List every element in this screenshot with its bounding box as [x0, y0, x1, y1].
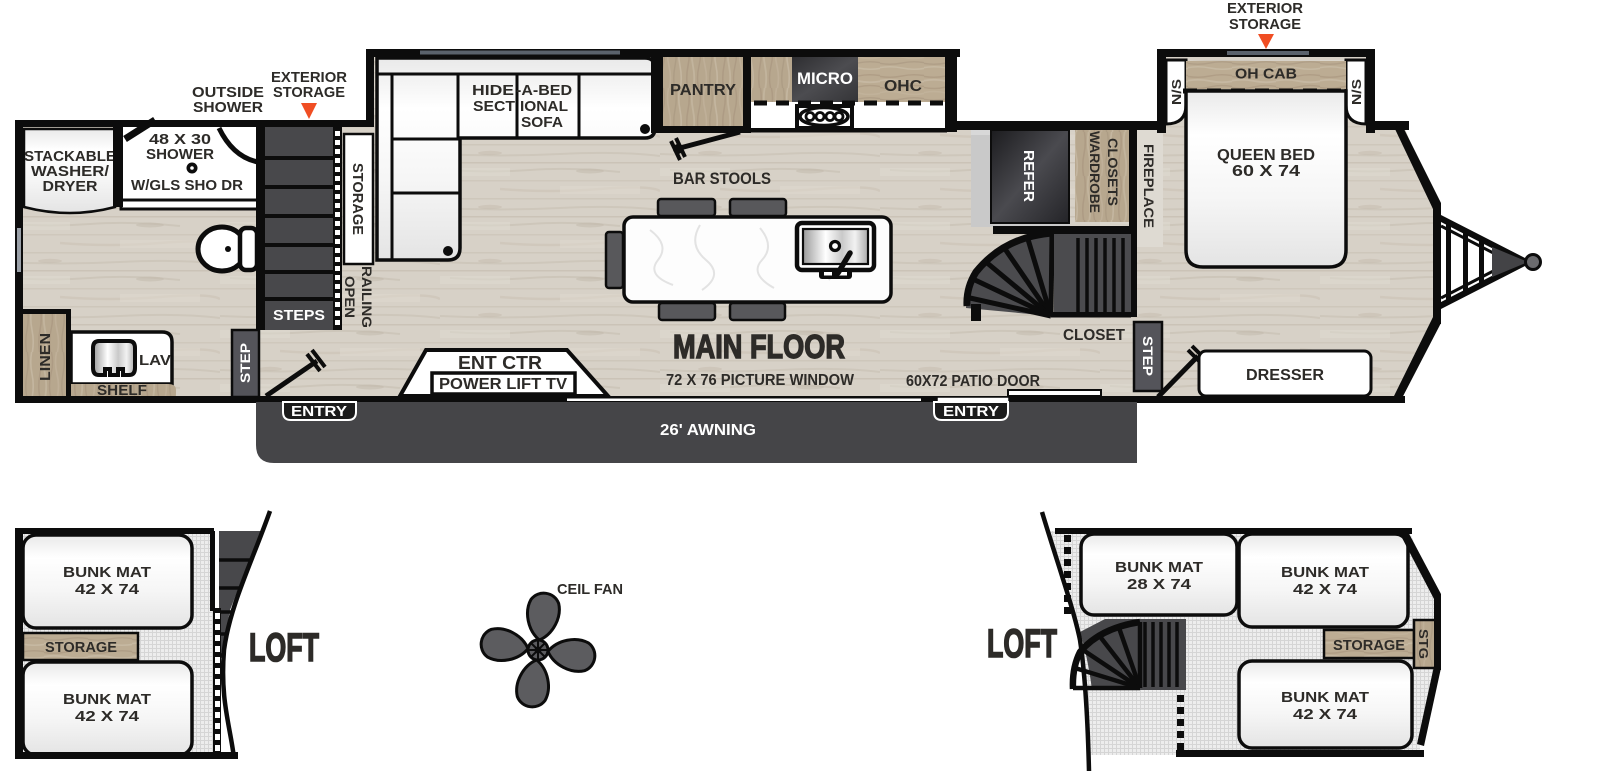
svg-text:PANTRY: PANTRY	[670, 82, 736, 99]
svg-text:STORAGE: STORAGE	[273, 84, 345, 101]
svg-text:IONAL: IONAL	[520, 98, 568, 115]
svg-text:BUNK MAT: BUNK MAT	[1281, 689, 1369, 706]
svg-text:STORAGE: STORAGE	[45, 640, 117, 656]
svg-text:N/S: N/S	[1170, 79, 1184, 105]
svg-text:REFER: REFER	[1020, 150, 1037, 202]
svg-text:EXTERIOR: EXTERIOR	[1227, 0, 1303, 17]
svg-text:WARDROBE: WARDROBE	[1087, 131, 1103, 213]
svg-text:POWER LIFT TV: POWER LIFT TV	[439, 376, 567, 393]
svg-text:OH CAB: OH CAB	[1235, 67, 1297, 83]
svg-text:ENTRY: ENTRY	[943, 403, 999, 420]
svg-text:SECT: SECT	[473, 98, 515, 115]
svg-text:BUNK MAT: BUNK MAT	[1281, 564, 1369, 581]
svg-text:STEP: STEP	[1140, 336, 1156, 376]
svg-text:CEIL FAN: CEIL FAN	[557, 581, 623, 598]
svg-text:DRESSER: DRESSER	[1246, 367, 1324, 384]
svg-text:LAV: LAV	[139, 352, 171, 369]
svg-text:CLOSETS: CLOSETS	[1105, 138, 1121, 206]
svg-text:WASHER/: WASHER/	[31, 164, 109, 180]
svg-text:BAR STOOLS: BAR STOOLS	[673, 169, 771, 188]
svg-text:ENT CTR: ENT CTR	[458, 353, 542, 373]
svg-text:ENTRY: ENTRY	[291, 403, 347, 420]
svg-text:OPEN: OPEN	[342, 276, 357, 318]
svg-text:SHOWER: SHOWER	[193, 99, 263, 116]
svg-text:STEPS: STEPS	[273, 308, 325, 324]
svg-text:42 X 74: 42 X 74	[75, 581, 140, 598]
svg-text:BUNK MAT: BUNK MAT	[63, 691, 151, 708]
svg-text:STORAGE: STORAGE	[1229, 16, 1301, 33]
svg-text:-A-BED: -A-BED	[516, 82, 572, 99]
svg-text:60X72 PATIO DOOR: 60X72 PATIO DOOR	[906, 373, 1040, 390]
svg-text:72 X 76 PICTURE WINDOW: 72 X 76 PICTURE WINDOW	[666, 372, 855, 389]
svg-text:MAIN FLOOR: MAIN FLOOR	[673, 328, 845, 365]
svg-text:LOFT: LOFT	[249, 626, 319, 670]
svg-text:HIDE: HIDE	[472, 82, 514, 99]
svg-text:42 X 74: 42 X 74	[75, 708, 140, 725]
svg-text:FIREPLACE: FIREPLACE	[1141, 144, 1157, 228]
svg-text:STORAGE: STORAGE	[1333, 638, 1405, 654]
svg-text:STEP: STEP	[237, 343, 253, 383]
svg-text:BUNK MAT: BUNK MAT	[63, 564, 151, 581]
svg-text:BUNK MAT: BUNK MAT	[1115, 559, 1203, 576]
svg-text:OHC: OHC	[884, 78, 922, 95]
svg-text:N/S: N/S	[1350, 79, 1364, 105]
svg-text:CLOSET: CLOSET	[1063, 327, 1126, 344]
svg-text:STORAGE: STORAGE	[349, 163, 366, 235]
svg-text:DRYER: DRYER	[43, 179, 99, 195]
svg-text:RAILING: RAILING	[359, 266, 374, 328]
svg-text:60 X 74: 60 X 74	[1232, 163, 1300, 180]
svg-text:STACKABLE: STACKABLE	[24, 149, 116, 165]
svg-text:48 X 30: 48 X 30	[149, 132, 211, 148]
svg-text:W/GLS SHO DR: W/GLS SHO DR	[131, 178, 244, 194]
svg-text:MICRO: MICRO	[797, 69, 853, 88]
svg-text:LOFT: LOFT	[987, 622, 1057, 666]
svg-text:42 X 74: 42 X 74	[1293, 706, 1358, 723]
svg-text:28 X 74: 28 X 74	[1127, 576, 1192, 593]
svg-text:STG: STG	[1416, 629, 1431, 659]
svg-text:SOFA: SOFA	[521, 114, 563, 131]
svg-text:42 X 74: 42 X 74	[1293, 581, 1358, 598]
svg-text:QUEEN BED: QUEEN BED	[1217, 147, 1315, 164]
svg-text:SHOWER: SHOWER	[146, 147, 215, 163]
svg-text:26' AWNING: 26' AWNING	[660, 422, 756, 439]
svg-text:LINEN: LINEN	[37, 333, 54, 381]
